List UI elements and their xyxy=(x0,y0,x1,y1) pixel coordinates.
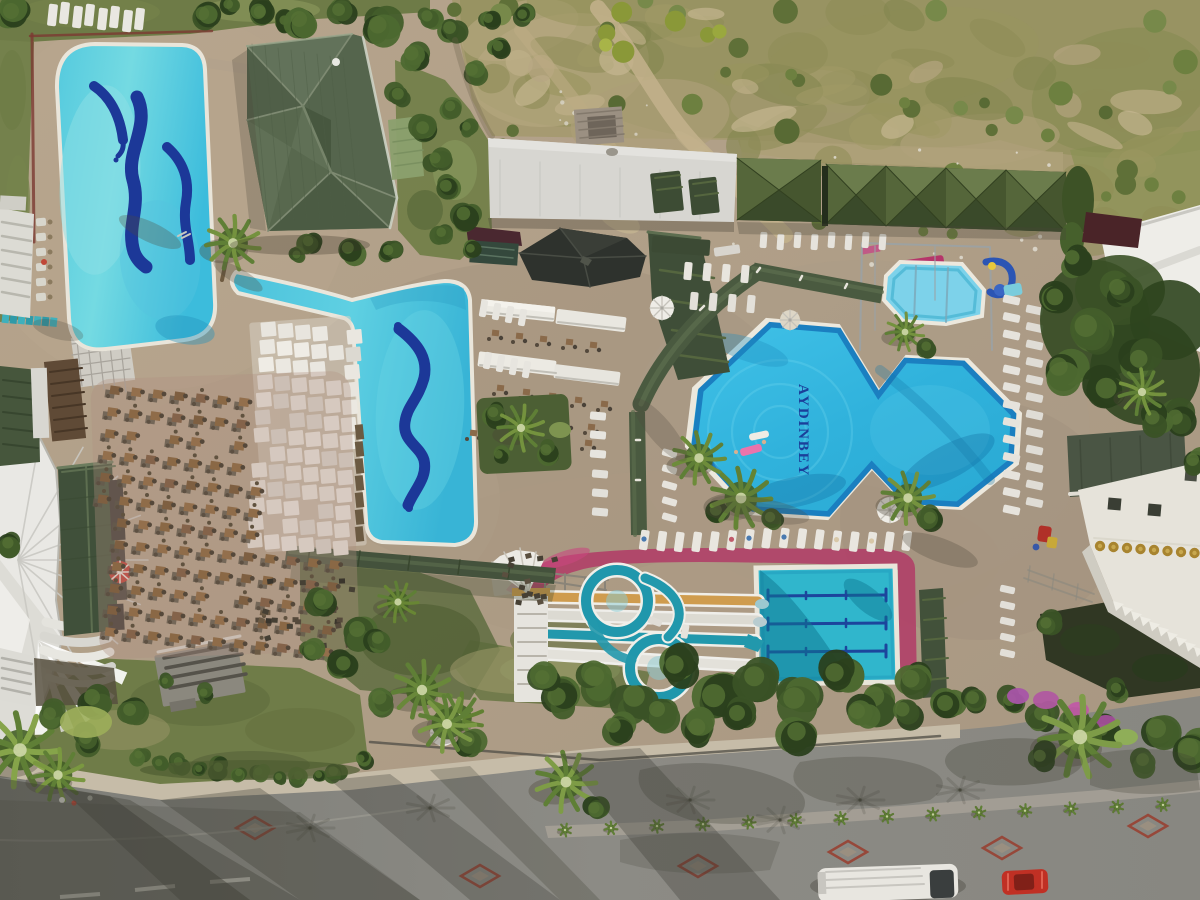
svg-text:AYDINBEY: AYDINBEY xyxy=(795,384,811,477)
